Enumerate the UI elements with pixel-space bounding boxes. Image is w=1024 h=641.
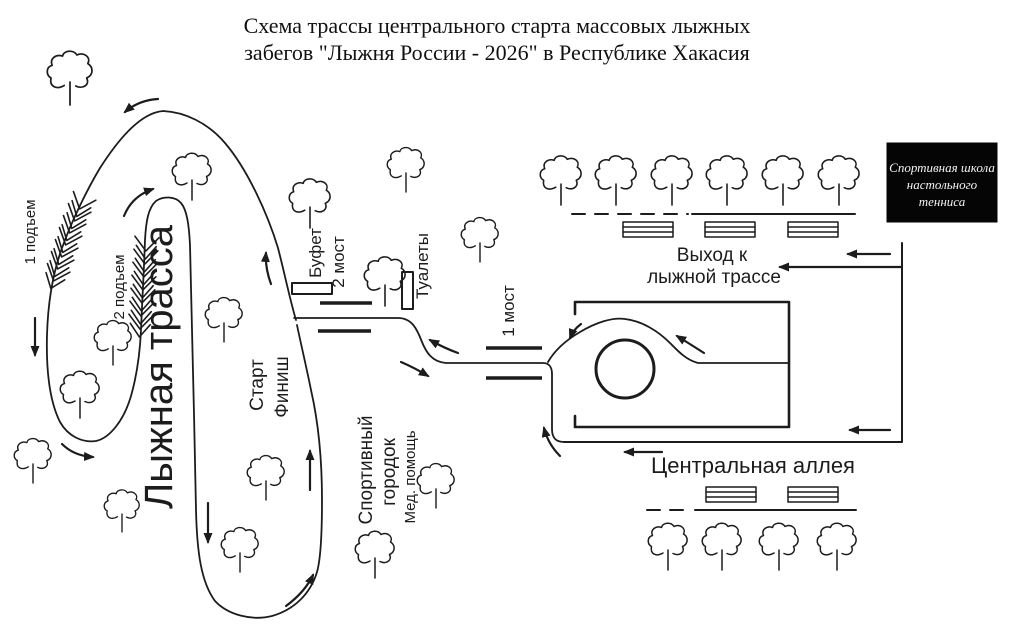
tree-icon (104, 490, 139, 532)
central-alley-label: Центральная аллея (651, 453, 855, 478)
bench-row-top (623, 222, 838, 237)
tree-icon (759, 523, 798, 570)
tree-icon (172, 153, 211, 200)
buffet-building (292, 283, 332, 294)
ski-course-scheme: Схема трассы центрального старта массовы… (0, 0, 1024, 641)
tree-icon (417, 464, 454, 508)
tree-icon (648, 523, 687, 570)
tree-icon (387, 148, 424, 192)
exit-label-line2: лыжной трассе (647, 267, 781, 288)
toilets-label: Туалеты (413, 233, 432, 299)
fountain-circle (596, 340, 654, 398)
bridge-2-label: 2 мост (329, 236, 348, 288)
tree-icon (540, 156, 581, 205)
table-tennis-school-sign: Спортивная школа настольного тенниса (887, 143, 997, 222)
medical-aid-label: Мед. помощь (402, 430, 419, 523)
tree-icon (364, 257, 405, 306)
scheme-title-line1: Схема трассы центрального старта массовы… (244, 13, 751, 38)
tree-icon (60, 371, 99, 418)
tree-icon (47, 51, 92, 105)
buffet-label: Буфет (306, 228, 325, 278)
trail-to-park (294, 318, 564, 442)
scheme-canvas: Схема трассы центрального старта массовы… (0, 0, 1024, 641)
tree-icon (818, 156, 859, 205)
school-sign-line3: тенниса (919, 194, 966, 209)
bridge-1-label: 1 мост (499, 285, 518, 337)
tree-icon (461, 218, 498, 262)
tree-icon (595, 156, 636, 205)
start-label: Старт (247, 359, 268, 411)
sport-town-label-line2: городок (379, 437, 400, 505)
finish-label: Финиш (272, 356, 293, 417)
roundabout-path (548, 319, 788, 363)
climb-2-label: 2 подъем (111, 254, 128, 319)
climb-1-label: 1 подъем (22, 199, 39, 264)
climb-1-marks (40, 192, 96, 293)
tree-icon (94, 321, 131, 365)
tree-icon (651, 156, 692, 205)
tree-icon (14, 439, 51, 483)
tree-icon (762, 156, 803, 205)
tree-icon (706, 156, 747, 205)
tree-icon (355, 531, 394, 578)
scheme-title-line2: забегов "Лыжня России - 2026" в Республи… (244, 40, 750, 65)
tree-icon (221, 528, 258, 572)
exit-label-line1: Выход к (677, 245, 748, 266)
tree-icon (205, 298, 242, 342)
bench-row-bottom (706, 487, 838, 502)
tree-icon (247, 456, 284, 500)
tree-icon (817, 523, 856, 570)
tree-icon (702, 523, 741, 570)
school-sign-line2: настольного (907, 177, 978, 192)
bridge-2-marks (318, 303, 372, 331)
sport-town-label-line1: Спортивный (356, 416, 377, 525)
ski-track-label: Лыжная трасса (137, 224, 181, 509)
tree-icon (289, 179, 330, 228)
school-sign-line1: Спортивная школа (889, 160, 995, 175)
